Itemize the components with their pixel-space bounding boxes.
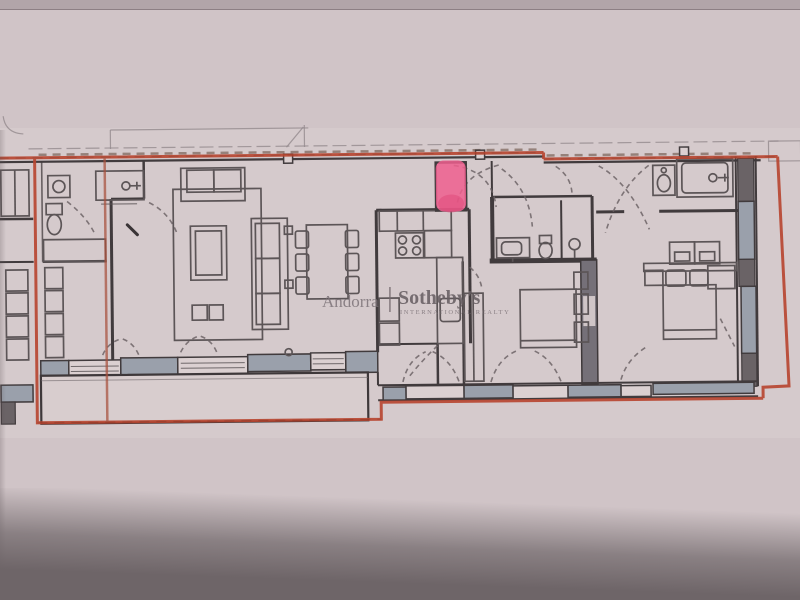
sofa-two-seat	[181, 168, 245, 202]
pink-marker-highlight	[436, 160, 467, 212]
pillow	[690, 270, 708, 286]
bathtub-left	[43, 239, 105, 262]
faucet-icon	[122, 182, 130, 190]
appliance	[379, 323, 399, 345]
sink-left	[48, 175, 70, 197]
closet-column	[45, 268, 64, 358]
bed-middle	[520, 289, 577, 348]
toilet-right	[653, 165, 675, 195]
watermark-brand: Sotheby's	[398, 287, 480, 309]
watermark-region: Andorra	[322, 292, 379, 311]
kitchen-counter	[379, 210, 451, 231]
terrace	[41, 372, 368, 423]
bathroom-right	[599, 159, 734, 233]
pillow	[666, 270, 686, 286]
watermark: Andorra Sotheby's INTERNATIONAL REALTY	[322, 287, 510, 316]
bedroom-middle	[464, 272, 589, 382]
nightstand	[645, 270, 663, 285]
ottoman	[209, 305, 223, 320]
floor-plan-scan-photo: Andorra Sotheby's INTERNATIONAL REALTY	[0, 0, 800, 600]
toilet-middle-bowl	[539, 242, 552, 258]
toilet-left-bowl	[47, 215, 61, 235]
bathroom-left	[43, 171, 145, 262]
dining-table	[306, 225, 348, 299]
bedroom-right	[620, 241, 738, 379]
ottoman	[192, 305, 207, 320]
entry-hall	[454, 164, 573, 289]
watermark-tagline: INTERNATIONAL REALTY	[400, 309, 510, 316]
watermark-divider	[389, 287, 391, 312]
scan-bottom-shadow	[0, 488, 800, 600]
bed-right	[663, 285, 717, 340]
basin-middle	[569, 239, 580, 250]
living-room	[101, 166, 360, 355]
faucet-icon	[709, 174, 717, 182]
rug	[173, 188, 263, 340]
toilet-left-tank	[46, 204, 62, 215]
